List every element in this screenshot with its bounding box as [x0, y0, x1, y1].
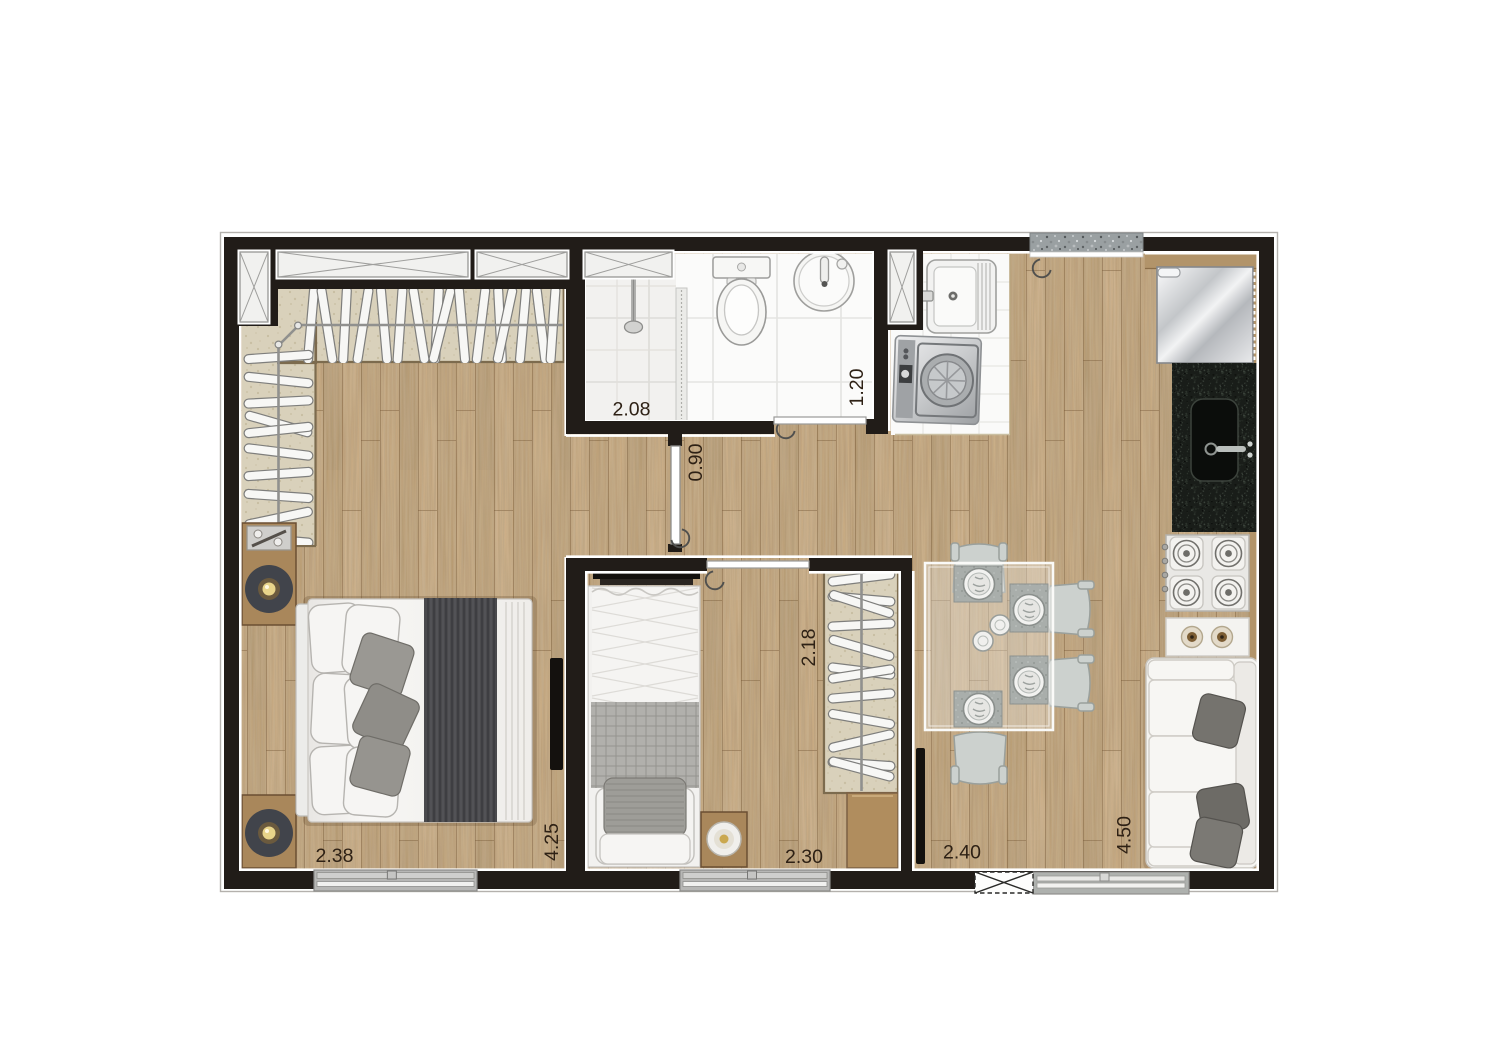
svg-text:4.25: 4.25	[541, 823, 563, 861]
svg-text:1.20: 1.20	[846, 368, 868, 406]
svg-text:4.50: 4.50	[1114, 816, 1136, 854]
svg-text:2.08: 2.08	[613, 399, 651, 421]
svg-text:2.40: 2.40	[943, 842, 981, 864]
svg-text:2.18: 2.18	[798, 629, 820, 667]
svg-text:2.38: 2.38	[316, 845, 354, 867]
svg-text:0.90: 0.90	[685, 443, 707, 481]
svg-text:2.30: 2.30	[785, 846, 823, 868]
